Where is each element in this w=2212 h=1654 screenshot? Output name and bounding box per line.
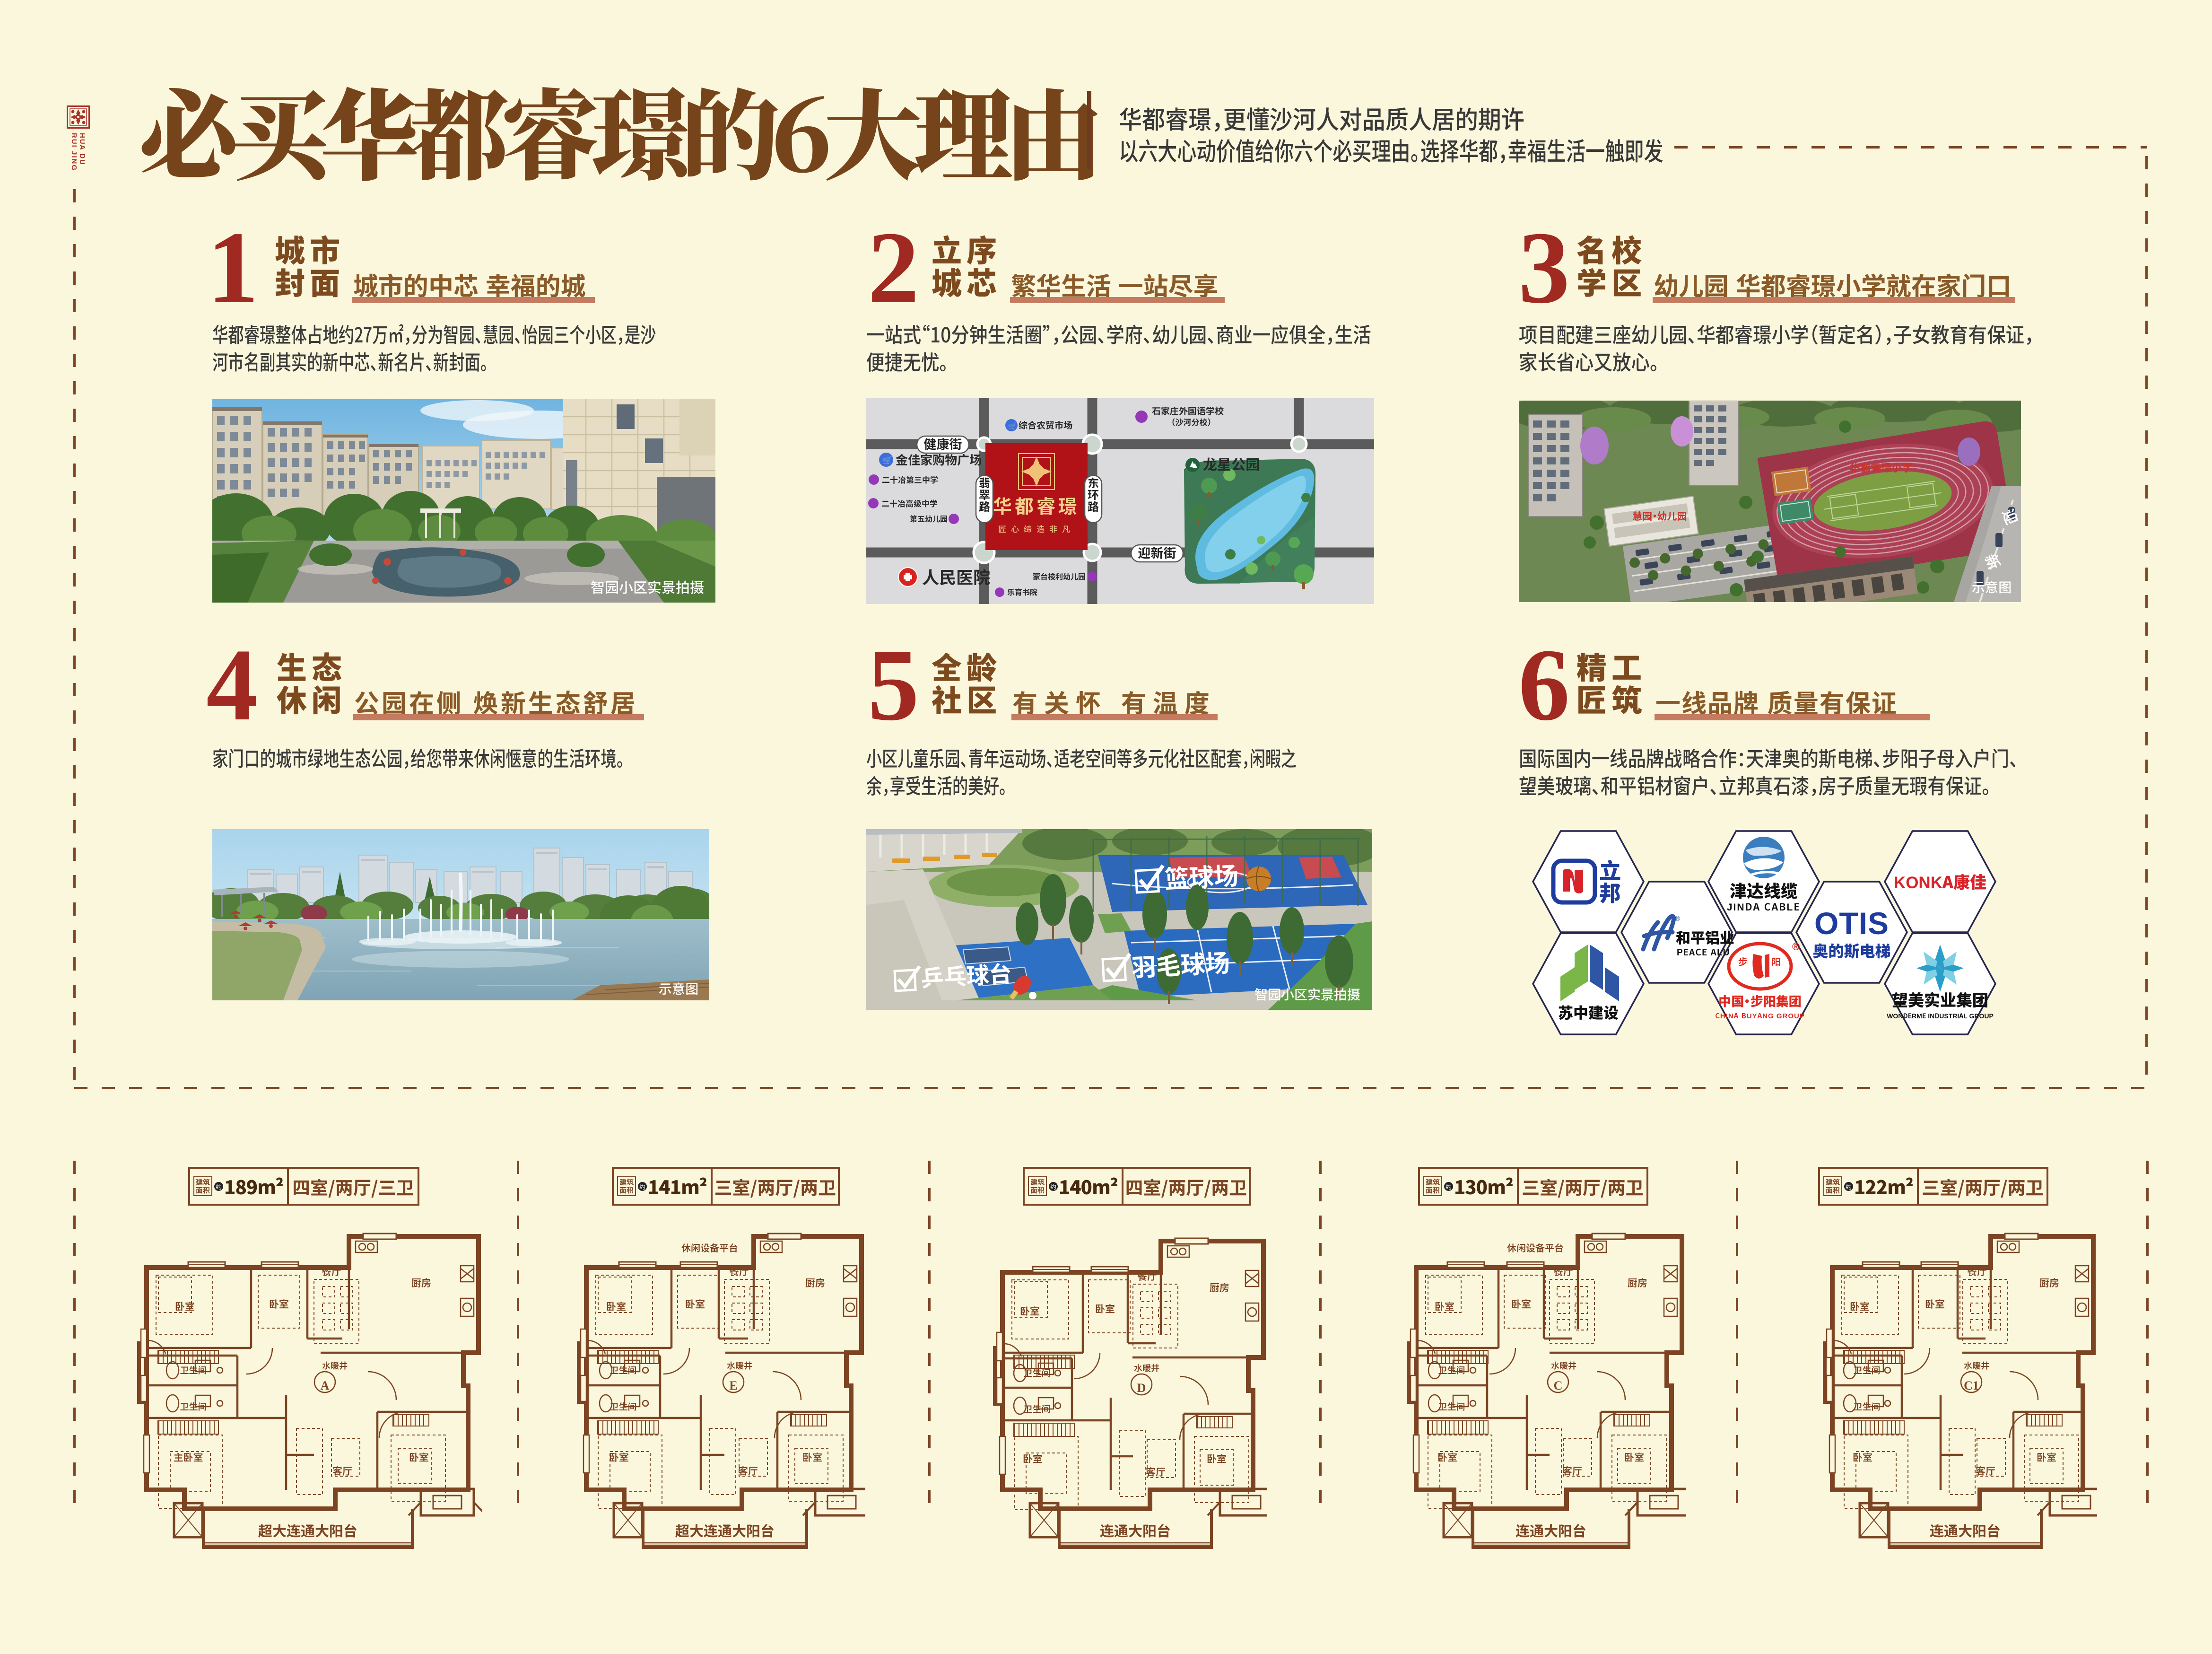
svg-text:卧室: 卧室	[685, 1297, 705, 1311]
svg-text:厨房: 厨房	[2039, 1276, 2059, 1290]
svg-text:主卧室: 主卧室	[174, 1450, 203, 1464]
svg-text:水暖井: 水暖井	[1964, 1359, 1989, 1372]
svg-text:卧室: 卧室	[1020, 1304, 1040, 1318]
svg-text:卧室: 卧室	[1207, 1452, 1227, 1466]
svg-text:超大连通大阳台: 超大连通大阳台	[675, 1520, 775, 1540]
svg-text:龙星公园: 龙星公园	[1203, 453, 1260, 474]
svg-text:厨房: 厨房	[1210, 1280, 1229, 1295]
svg-text:餐厅: 餐厅	[729, 1264, 749, 1278]
svg-text:PEACE ALU: PEACE ALU	[1677, 945, 1730, 958]
svg-text:®: ®	[1675, 913, 1680, 923]
svg-text:中国·步阳集团: 中国·步阳集团	[1718, 991, 1802, 1010]
svg-text:卧室: 卧室	[175, 1299, 195, 1313]
svg-text:卧室: 卧室	[1023, 1452, 1043, 1466]
svg-text:客厅: 客厅	[1562, 1464, 1582, 1478]
svg-text:卧室: 卧室	[609, 1450, 629, 1464]
svg-text:羽毛球场: 羽毛球场	[1131, 943, 1231, 984]
svg-text:二十冶第三中学: 二十冶第三中学	[882, 473, 938, 485]
svg-text:慧园·幼儿园: 慧园·幼儿园	[1632, 509, 1687, 523]
svg-text:🛒: 🛒	[882, 454, 892, 465]
svg-text:卫生间: 卫生间	[180, 1364, 207, 1376]
svg-text:卫生间: 卫生间	[1023, 1366, 1050, 1379]
svg-text:华都睿璟: 华都睿璟	[993, 491, 1080, 519]
svg-text:餐厅: 餐厅	[1967, 1264, 1987, 1278]
svg-text:水暖井: 水暖井	[322, 1359, 348, 1372]
svg-text:厨房: 厨房	[411, 1276, 431, 1290]
svg-text:厨房: 厨房	[805, 1276, 825, 1290]
svg-text:连通大阳台: 连通大阳台	[1930, 1520, 2001, 1540]
svg-text:餐厅: 餐厅	[1137, 1269, 1157, 1283]
svg-text:A: A	[321, 1379, 330, 1392]
svg-text:示意图: 示意图	[1972, 578, 2012, 596]
svg-text:第五幼儿园: 第五幼儿园	[910, 513, 948, 524]
svg-text:卧室: 卧室	[1511, 1297, 1531, 1311]
svg-text:卫生间: 卫生间	[1853, 1364, 1880, 1376]
svg-text:客厅: 客厅	[332, 1464, 352, 1478]
svg-text:卫生间: 卫生间	[610, 1364, 636, 1376]
svg-text:休闲设备平台: 休闲设备平台	[681, 1241, 738, 1254]
svg-text:卫生间: 卫生间	[1438, 1400, 1465, 1413]
svg-text:乒乓球台: 乒乓球台	[920, 955, 1012, 993]
svg-text:KONKA康佳: KONKA康佳	[1894, 869, 1986, 893]
svg-text:卫生间: 卫生间	[180, 1400, 207, 1413]
svg-text:卧室: 卧室	[409, 1450, 429, 1464]
svg-text:C1: C1	[1964, 1379, 1979, 1392]
svg-text:人民医院: 人民医院	[922, 564, 990, 589]
svg-text:卧室: 卧室	[1435, 1299, 1454, 1313]
svg-text:望美实业集团: 望美实业集团	[1892, 988, 1988, 1011]
svg-text:奥的斯电梯: 奥的斯电梯	[1813, 939, 1891, 962]
svg-text:C: C	[1554, 1379, 1563, 1392]
svg-text:水暖井: 水暖井	[1551, 1359, 1576, 1372]
svg-text:连通大阳台: 连通大阳台	[1100, 1520, 1171, 1540]
svg-text:卧室: 卧室	[606, 1299, 626, 1313]
svg-text:水暖井: 水暖井	[1134, 1362, 1159, 1374]
svg-text:邦: 邦	[1599, 876, 1621, 908]
svg-text:华都睿璟小学: 华都睿璟小学	[1850, 460, 1912, 475]
svg-text:卧室: 卧室	[802, 1450, 822, 1464]
svg-text:篮球场: 篮球场	[1164, 856, 1239, 895]
svg-text:餐厅: 餐厅	[1553, 1264, 1573, 1278]
svg-text:客厅: 客厅	[1146, 1465, 1166, 1479]
svg-text:综合农贸市场: 综合农贸市场	[1019, 419, 1072, 431]
svg-text:卧室: 卧室	[269, 1297, 289, 1311]
svg-text:OTIS: OTIS	[1814, 906, 1889, 941]
svg-text:客厅: 客厅	[738, 1464, 758, 1478]
svg-text:二十冶高级中学: 二十冶高级中学	[881, 497, 938, 509]
svg-text:蒙台梭利幼儿园: 蒙台梭利幼儿园	[1033, 570, 1086, 582]
svg-text:餐厅: 餐厅	[322, 1264, 341, 1278]
svg-text:卧室: 卧室	[2037, 1450, 2056, 1464]
svg-text:和平铝业: 和平铝业	[1676, 926, 1734, 947]
svg-text:卧室: 卧室	[1095, 1302, 1115, 1316]
svg-text:翡翠路: 翡翠路	[979, 474, 990, 514]
svg-text:®: ®	[1792, 938, 1800, 954]
svg-text:苏中建设: 苏中建设	[1558, 1001, 1619, 1023]
svg-text:卧室: 卧室	[1850, 1299, 1870, 1313]
svg-text:卧室: 卧室	[1853, 1450, 1872, 1464]
svg-text:JINDA CABLE: JINDA CABLE	[1727, 900, 1801, 914]
svg-text:休闲设备平台: 休闲设备平台	[1507, 1241, 1564, 1254]
svg-text:智园小区实景拍摄: 智园小区实景拍摄	[1254, 985, 1360, 1004]
svg-text:卫生间: 卫生间	[1853, 1400, 1880, 1413]
svg-text:津达线缆: 津达线缆	[1730, 878, 1798, 902]
svg-text:客厅: 客厅	[1976, 1464, 1995, 1478]
svg-text:卧室: 卧室	[1925, 1297, 1945, 1311]
svg-text:智园小区实景拍摄: 智园小区实景拍摄	[591, 576, 704, 597]
svg-text:水暖井: 水暖井	[727, 1359, 752, 1372]
svg-text:卫生间: 卫生间	[610, 1400, 636, 1413]
svg-text:东环路: 东环路	[1088, 474, 1099, 514]
svg-text:WONDERME INDUSTRIAL GROUP: WONDERME INDUSTRIAL GROUP	[1887, 1011, 1994, 1021]
svg-text:🛒: 🛒	[1008, 421, 1017, 431]
svg-text:健康街: 健康街	[924, 434, 962, 453]
svg-text:卫生间: 卫生间	[1023, 1402, 1050, 1415]
svg-text:阳: 阳	[1771, 954, 1781, 968]
svg-text:CHINA BUYANG GROUP: CHINA BUYANG GROUP	[1715, 1011, 1805, 1021]
svg-text:卧室: 卧室	[1437, 1450, 1457, 1464]
svg-text:迎新街: 迎新街	[1138, 543, 1176, 561]
svg-text:D: D	[1137, 1381, 1146, 1395]
svg-text:步: 步	[1738, 954, 1748, 968]
svg-text:超大连通大阳台: 超大连通大阳台	[258, 1520, 357, 1540]
svg-text:金佳家购物广场: 金佳家购物广场	[896, 451, 982, 468]
svg-text:连通大阳台: 连通大阳台	[1515, 1520, 1586, 1540]
svg-text:卧室: 卧室	[1624, 1450, 1644, 1464]
svg-text:匠心缔造非凡: 匠心缔造非凡	[998, 523, 1075, 534]
svg-text:厨房: 厨房	[1628, 1276, 1647, 1290]
svg-text:乐育书院: 乐育书院	[1007, 586, 1037, 597]
svg-text:示意图: 示意图	[659, 979, 698, 998]
svg-text:卫生间: 卫生间	[1438, 1364, 1465, 1376]
svg-text:E: E	[729, 1379, 737, 1392]
